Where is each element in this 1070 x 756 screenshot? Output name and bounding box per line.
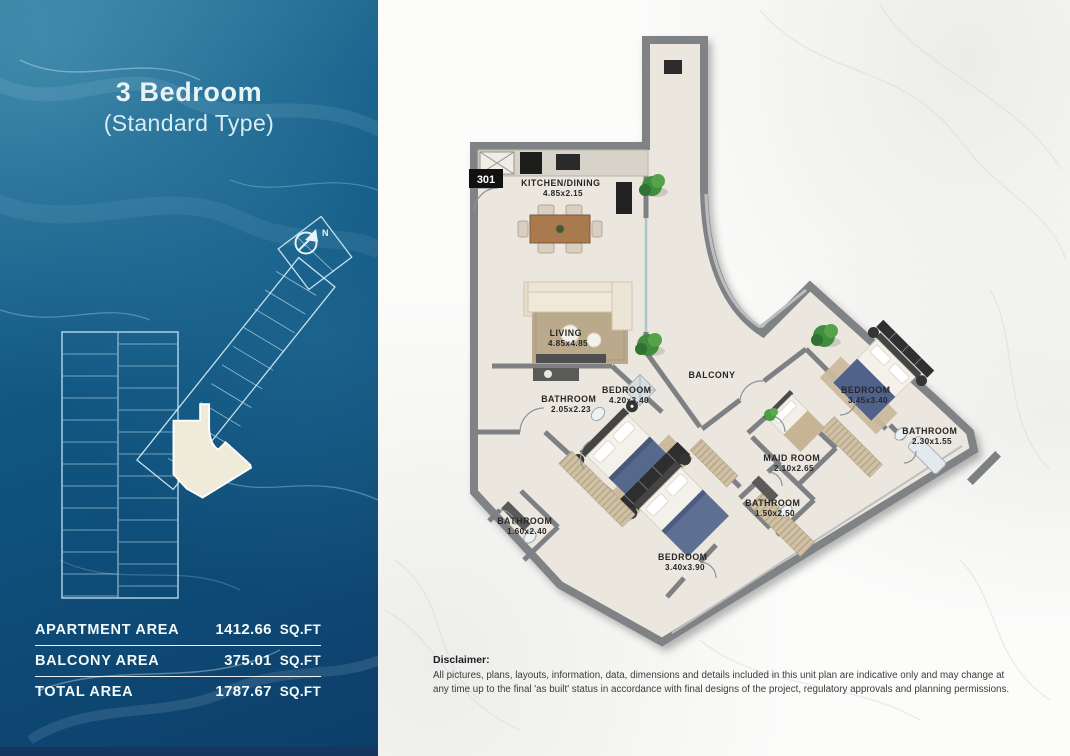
area-unit: SQ.FT (280, 622, 321, 637)
area-unit: SQ.FT (280, 653, 321, 668)
area-label: APARTMENT AREA (35, 622, 215, 638)
sink-icon (556, 154, 580, 170)
disclaimer-body: All pictures, plans, layouts, informatio… (433, 669, 1021, 697)
living-room-furniture (524, 282, 632, 364)
area-value: 1787.67 (215, 683, 271, 700)
footer-strip (0, 747, 378, 756)
stove-icon (520, 152, 542, 174)
area-value: 1412.66 (215, 621, 271, 638)
disclaimer-title: Disclaimer: (433, 654, 1021, 666)
shaft-box (664, 60, 682, 74)
unit-number-badge: 301 (469, 169, 503, 188)
area-table: APARTMENT AREA 1412.66 SQ.FT BALCONY ARE… (35, 615, 321, 707)
area-label: TOTAL AREA (35, 684, 215, 700)
unit-number: 301 (477, 174, 495, 186)
compass-north-label: N (322, 228, 329, 238)
tv-console (536, 354, 606, 363)
table-row-apartment-area: APARTMENT AREA 1412.66 SQ.FT (35, 615, 321, 646)
area-unit: SQ.FT (280, 684, 321, 699)
left-panel: 3 Bedroom (Standard Type) N (0, 0, 378, 756)
room-label-balcony: BALCONY (689, 370, 736, 380)
exterior-wall-stub (967, 451, 1001, 485)
floor-plan-panel: 301 KITCHEN/DINING 4.85x2.15 LIVING 4.85… (378, 0, 1070, 756)
area-value: 375.01 (224, 652, 272, 669)
area-label: BALCONY AREA (35, 653, 224, 669)
key-plan-unit-highlight (173, 404, 251, 497)
brochure-page: 3 Bedroom (Standard Type) N (0, 0, 1070, 756)
table-row-balcony-area: BALCONY AREA 375.01 SQ.FT (35, 646, 321, 677)
disclaimer: Disclaimer: All pictures, plans, layouts… (433, 654, 1021, 697)
table-row-total-area: TOTAL AREA 1787.67 SQ.FT (35, 677, 321, 707)
floor-plan: 301 KITCHEN/DINING 4.85x2.15 LIVING 4.85… (378, 0, 1070, 756)
fridge-icon (616, 182, 632, 214)
